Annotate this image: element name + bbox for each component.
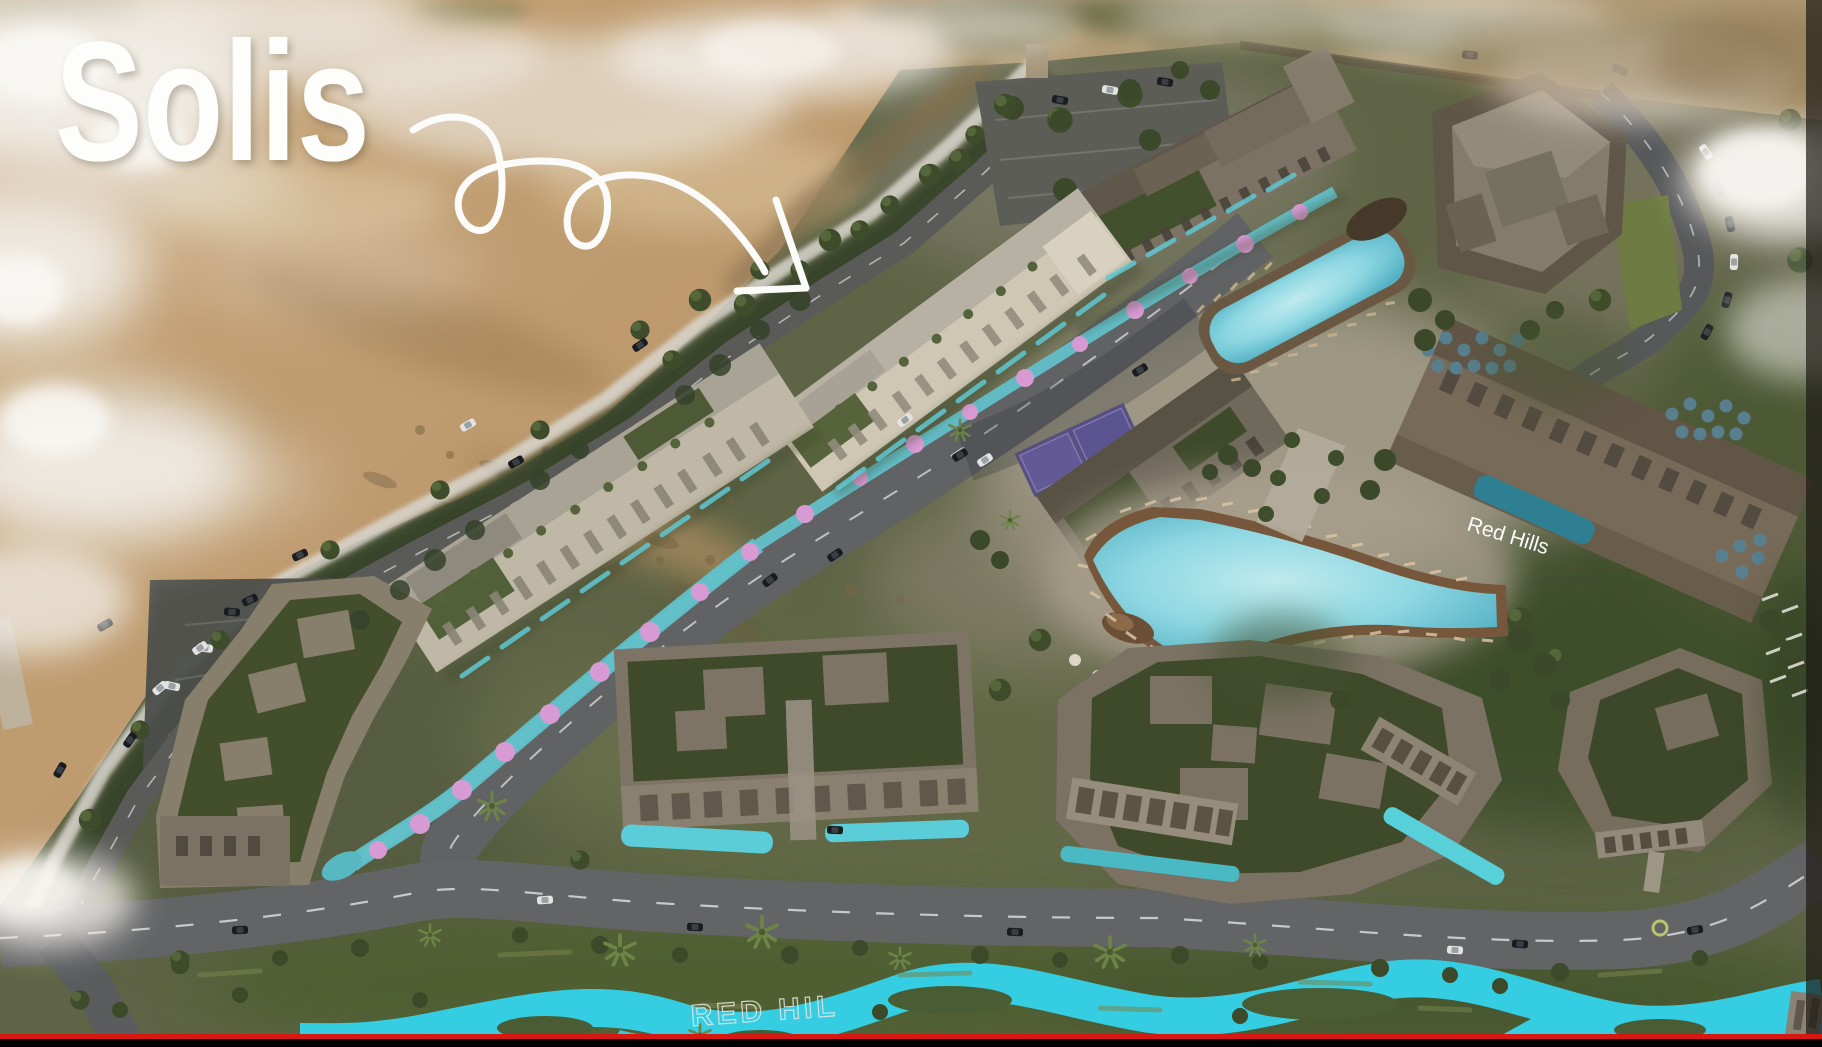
svg-text:Solis: Solis	[55, 7, 370, 197]
